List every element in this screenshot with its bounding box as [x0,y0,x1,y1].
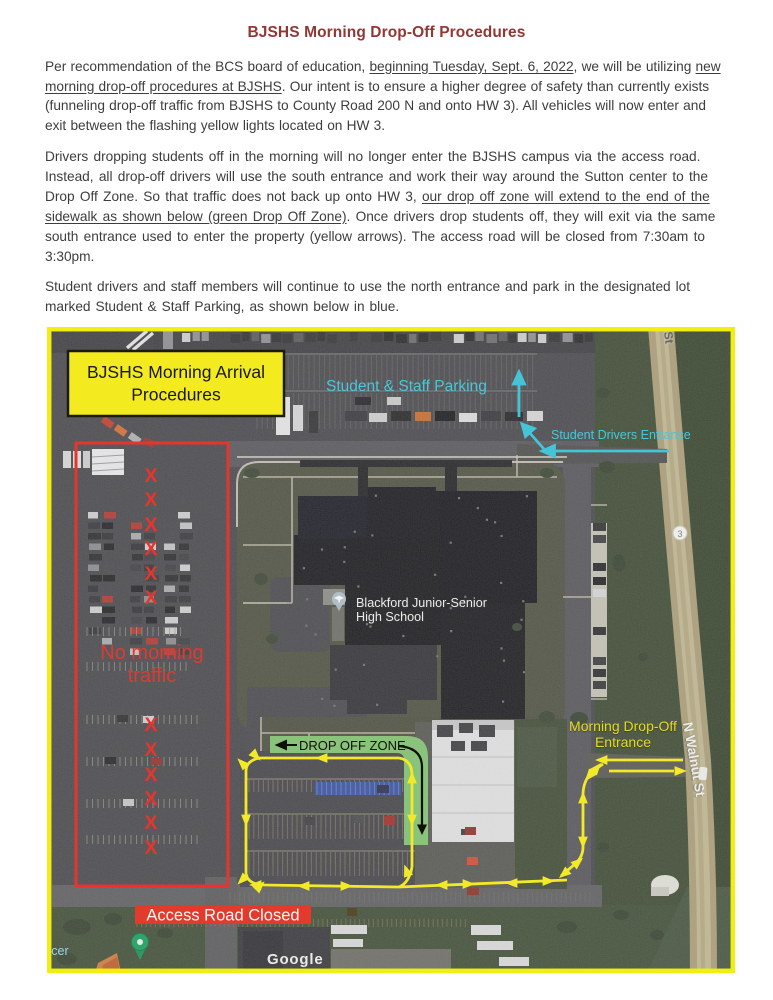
svg-text:X: X [144,587,157,609]
svg-text:X: X [144,538,157,560]
svg-text:Morning Drop-Off: Morning Drop-Off [569,718,677,734]
svg-text:X: X [144,764,157,786]
svg-text:DROP OFF ZONE: DROP OFF ZONE [299,738,406,753]
svg-text:Entrance: Entrance [595,734,651,750]
svg-text:X: X [144,465,157,487]
svg-text:X: X [144,739,157,761]
svg-text:X: X [144,714,157,736]
svg-text:Student & Staff Parking: Student & Staff Parking [326,378,487,395]
svg-text:X: X [144,563,157,585]
svg-text:X: X [144,812,157,834]
svg-text:Student Drivers Entrance: Student Drivers Entrance [551,428,691,442]
svg-text:X: X [144,514,157,536]
svg-text:X: X [144,489,157,511]
svg-text:traffic: traffic [128,665,177,687]
svg-text:X: X [144,788,157,810]
svg-text:Procedures: Procedures [131,385,221,405]
svg-text:X: X [144,837,157,859]
svg-text:BJSHS Morning Arrival: BJSHS Morning Arrival [87,362,265,382]
svg-text:No morning: No morning [100,642,203,664]
svg-text:Access Road Closed: Access Road Closed [146,907,299,925]
